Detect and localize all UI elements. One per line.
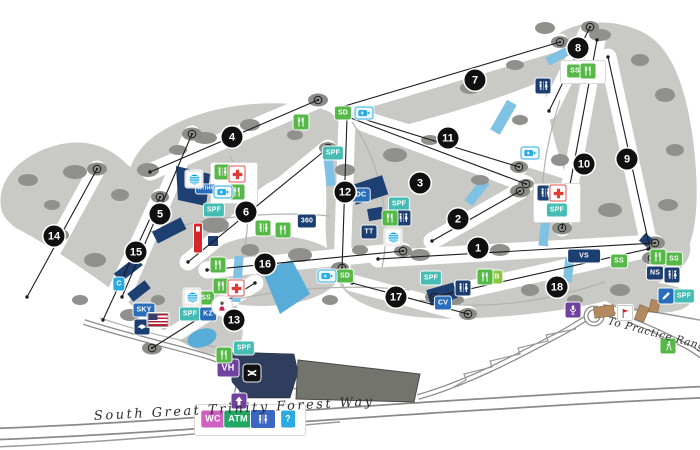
battery-glyph: [524, 150, 537, 157]
autograph-zone[interactable]: [659, 289, 674, 304]
food-glyph: [216, 281, 227, 292]
restroom-glyph: [537, 81, 549, 92]
first-aid-1[interactable]: [229, 166, 246, 183]
hole-marker-11[interactable]: 11: [438, 128, 459, 149]
hole-marker-12[interactable]: 12: [335, 182, 356, 203]
food-glyph: [213, 260, 224, 271]
concessions-8[interactable]: [211, 258, 226, 273]
sd-station-1[interactable]: SD: [335, 107, 351, 120]
food-glyph: [480, 272, 491, 283]
ua-glyph: [247, 368, 258, 379]
hole-marker-18[interactable]: 18: [547, 277, 568, 298]
concessions-9[interactable]: [214, 279, 229, 294]
restroom-glyph: [457, 283, 469, 294]
battery-glyph: [321, 273, 334, 280]
mic-glyph: [568, 305, 579, 316]
food-glyph: [385, 213, 396, 224]
hole-marker-16[interactable]: 16: [255, 254, 276, 275]
hole-marker-14[interactable]: 14: [44, 226, 65, 247]
hole-marker-7[interactable]: 7: [465, 70, 486, 91]
us-flag[interactable]: [148, 313, 169, 327]
restroom-3[interactable]: [396, 211, 411, 226]
hole-marker-1[interactable]: 1: [468, 238, 489, 259]
pencil-glyph: [661, 291, 672, 302]
firstaid-glyph: [231, 168, 243, 180]
food-glyph: [296, 117, 307, 128]
restroom-glyph: [397, 213, 409, 224]
charging-station-3[interactable]: [521, 147, 540, 160]
hole-marker-13[interactable]: 13: [224, 310, 245, 331]
spf-station-4[interactable]: SPF: [547, 204, 567, 217]
food-glyph: [583, 66, 594, 77]
spf-station-3[interactable]: SPF: [389, 198, 409, 211]
eagle-glyph: [137, 322, 148, 333]
food-glyph: [232, 187, 243, 198]
hole-marker-10[interactable]: 10: [574, 154, 595, 175]
concessions-3[interactable]: [294, 115, 309, 130]
b-station[interactable]: B: [491, 271, 502, 284]
restroom-glyph: [666, 270, 678, 281]
restroom-1[interactable]: [215, 165, 230, 180]
concessions-5[interactable]: [581, 64, 596, 79]
battery-glyph: [217, 189, 230, 196]
att-pavilion-2[interactable]: [184, 289, 201, 306]
charging-station-4[interactable]: [214, 186, 233, 199]
restroom-7[interactable]: [665, 268, 680, 283]
hole-marker-15[interactable]: 15: [126, 242, 147, 263]
broadcast-booth[interactable]: [566, 303, 581, 318]
practice-range-label: To Practice Range: [606, 315, 700, 354]
att-glyph: [186, 291, 198, 303]
charging-station-1[interactable]: [355, 107, 374, 120]
att-pavilion-1[interactable]: [186, 171, 203, 188]
firstaid-glyph: [552, 187, 564, 199]
ss-station-3[interactable]: SS: [611, 255, 627, 268]
hole-marker-3[interactable]: 3: [410, 173, 431, 194]
first-aid-2[interactable]: [550, 185, 567, 202]
charging-station-2[interactable]: [318, 270, 337, 283]
restroom-glyph: [216, 167, 228, 178]
hole-marker-9[interactable]: 9: [617, 149, 638, 170]
concessions-4[interactable]: [383, 211, 398, 226]
spf-station-1[interactable]: SPF: [204, 204, 224, 217]
spf-station-2[interactable]: SPF: [323, 147, 343, 160]
cv-station[interactable]: CV: [435, 297, 451, 310]
spf-station-5[interactable]: SPF: [421, 272, 441, 285]
concessions-7[interactable]: [651, 250, 666, 265]
restroom-6[interactable]: [456, 281, 471, 296]
restroom-glyph: [257, 223, 269, 234]
hole-marker-5[interactable]: 5: [150, 204, 171, 225]
sd-station-2[interactable]: SD: [337, 270, 353, 283]
red-banner[interactable]: [194, 224, 202, 253]
food-glyph: [653, 252, 664, 263]
ss-station-4[interactable]: SS: [666, 253, 682, 266]
spf-station-7[interactable]: SPF: [234, 342, 254, 355]
hole-marker-8[interactable]: 8: [568, 38, 589, 59]
hole-marker-6[interactable]: 6: [236, 202, 257, 223]
hole-marker-2[interactable]: 2: [448, 209, 469, 230]
firstaid-glyph: [230, 282, 242, 294]
nursing-glyph: [216, 300, 228, 312]
flag-glyph: [620, 308, 631, 319]
hole-marker-4[interactable]: 4: [222, 127, 243, 148]
c-station[interactable]: C: [113, 278, 124, 291]
ns-station[interactable]: NS: [647, 267, 663, 280]
food-glyph: [219, 350, 230, 361]
spf-station-8[interactable]: SPF: [674, 290, 694, 303]
concessions-10[interactable]: [217, 348, 232, 363]
att-pavilion-3[interactable]: [385, 229, 402, 246]
att-glyph: [188, 173, 200, 185]
concessions-6[interactable]: [478, 270, 493, 285]
att-glyph: [387, 231, 399, 243]
under-armour-shop[interactable]: [244, 365, 261, 382]
battery-glyph: [358, 110, 371, 117]
restroom-2[interactable]: [256, 221, 271, 236]
food-glyph: [278, 225, 289, 236]
tt-station[interactable]: TT: [362, 226, 377, 239]
club-360[interactable]: 360: [298, 215, 316, 228]
course-map: South Great Trinity Forest Way To Practi…: [0, 0, 700, 450]
first-aid-3[interactable]: [228, 280, 245, 297]
concessions-2[interactable]: [276, 223, 291, 238]
spf-station-6[interactable]: SPF: [180, 308, 200, 321]
hole-marker-17[interactable]: 17: [386, 287, 407, 308]
vs-station[interactable]: VS: [568, 250, 600, 263]
restroom-4[interactable]: [536, 79, 551, 94]
map-overlay: South Great Trinity Forest Way To Practi…: [0, 0, 700, 450]
